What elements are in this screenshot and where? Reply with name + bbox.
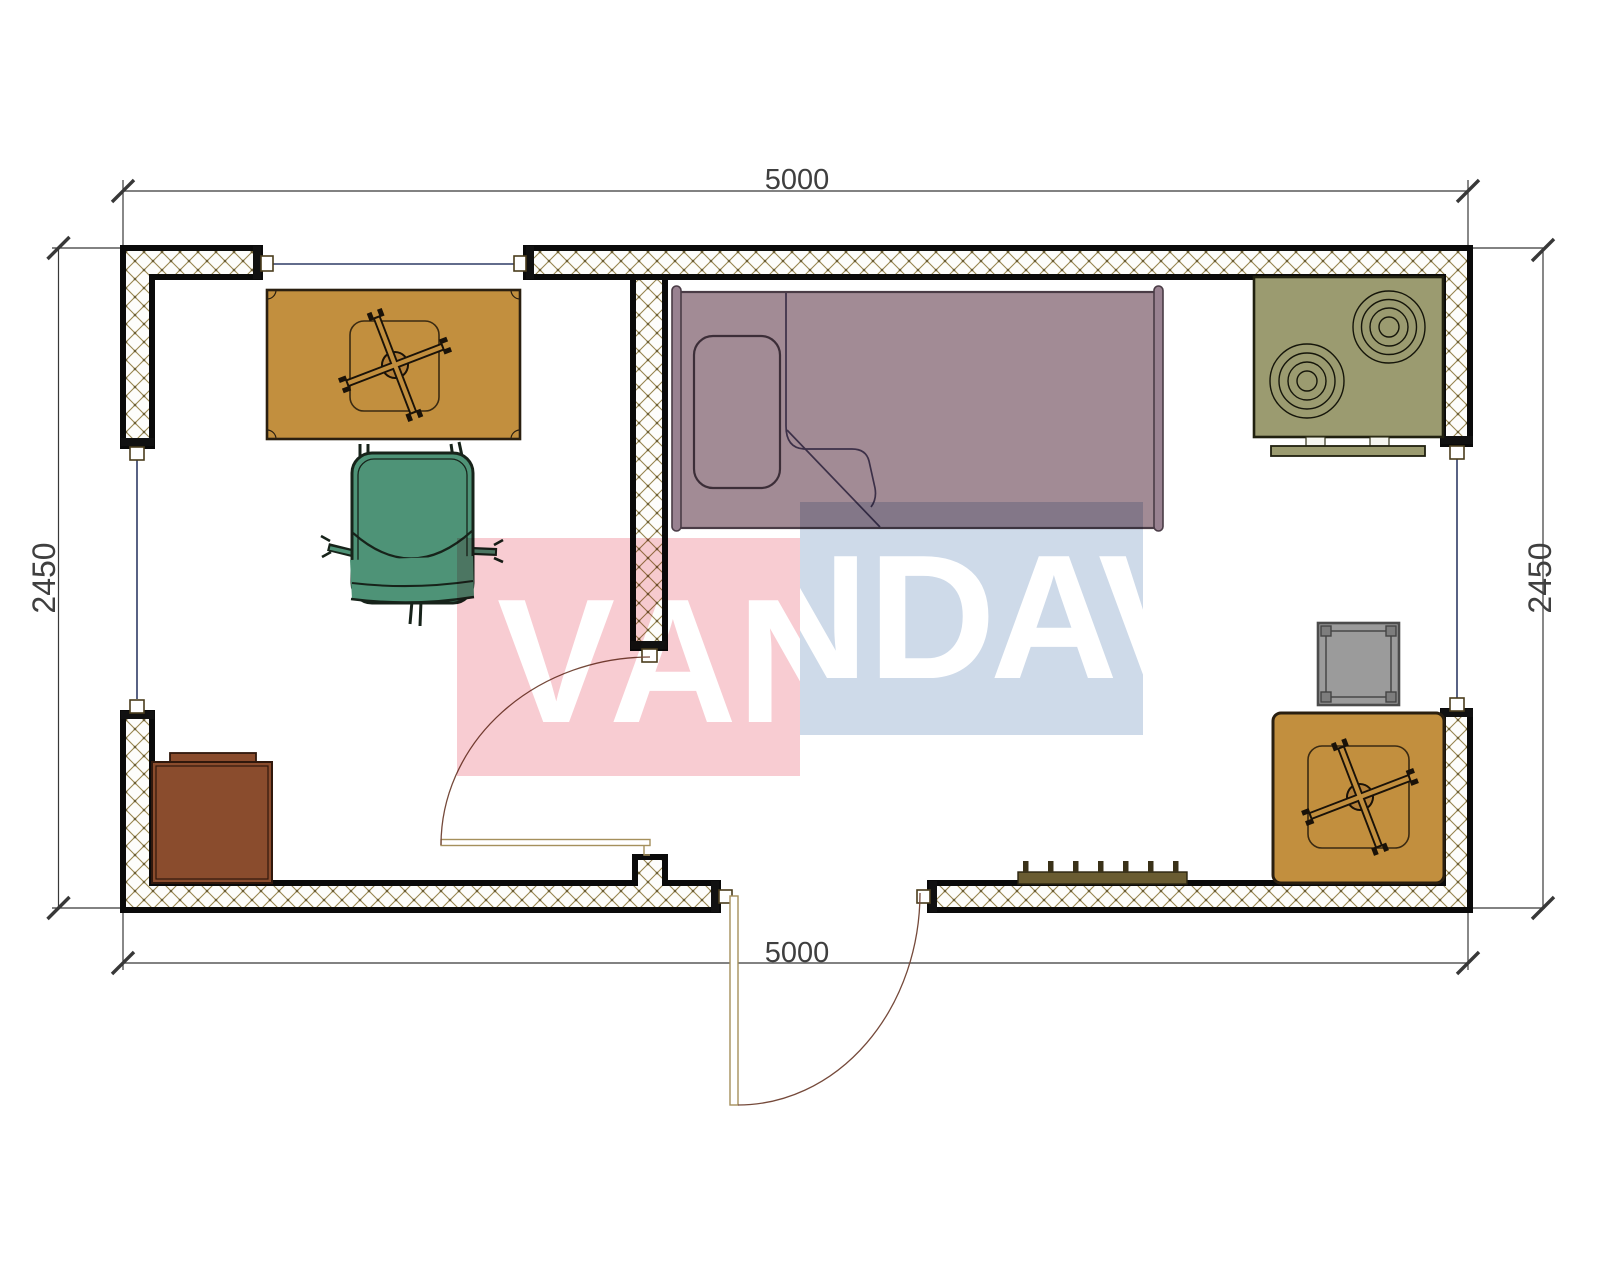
svg-text:5000: 5000 — [765, 164, 830, 196]
svg-text:2450: 2450 — [26, 542, 62, 613]
svg-text:2450: 2450 — [1522, 542, 1558, 613]
svg-text:5000: 5000 — [765, 937, 830, 969]
